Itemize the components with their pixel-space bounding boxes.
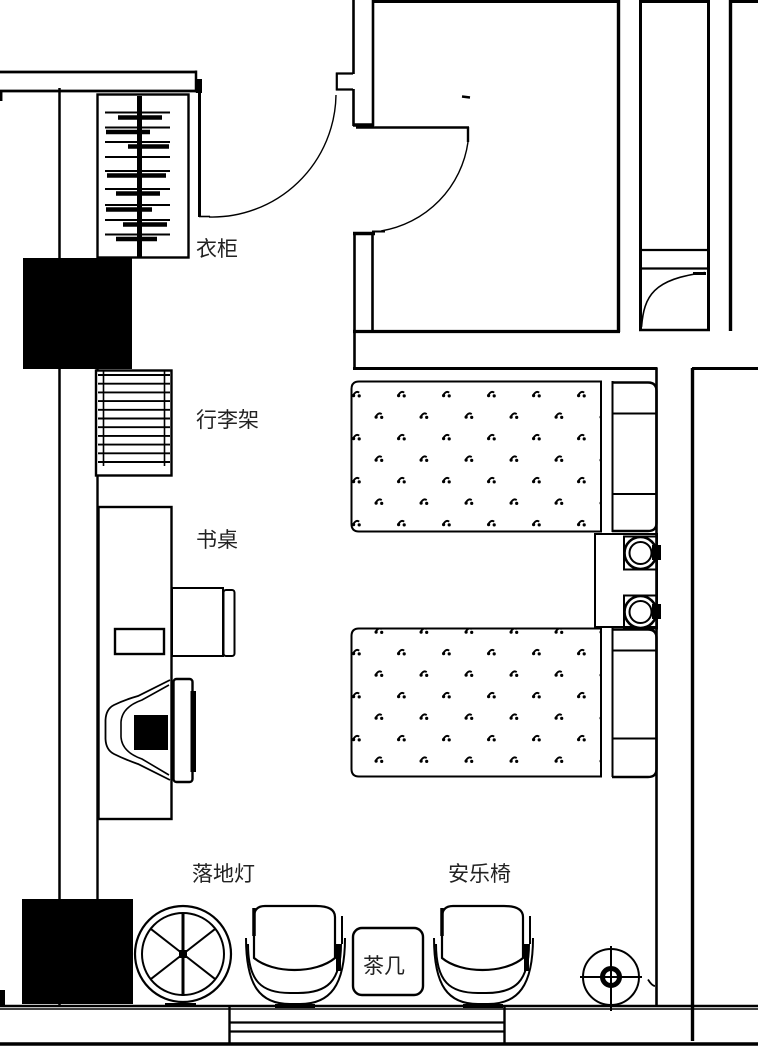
svg-text:衣柜: 衣柜 bbox=[196, 238, 238, 261]
svg-text:安乐椅: 安乐椅 bbox=[448, 863, 511, 886]
svg-text:行李架: 行李架 bbox=[196, 409, 259, 432]
svg-text:茶几: 茶几 bbox=[363, 955, 405, 978]
svg-text:落地灯: 落地灯 bbox=[192, 863, 255, 886]
svg-text:书桌: 书桌 bbox=[196, 529, 238, 552]
